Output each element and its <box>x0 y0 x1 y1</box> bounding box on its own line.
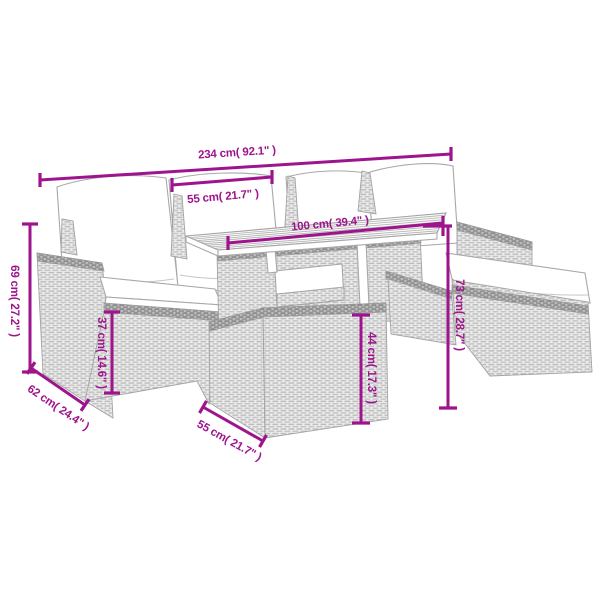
dim-total-height: 69 cm( 27.2" ) <box>8 224 38 372</box>
dim-seat-height-label: 37 cm( 14.6" ) <box>95 317 107 389</box>
dim-total-height-label: 69 cm( 27.2" ) <box>8 265 20 337</box>
dim-back-height-label: 73 cm( 28.7" ) <box>453 279 465 351</box>
dim-total-width-label: 234 cm( 92.1" ) <box>198 145 277 162</box>
right-sofa-seat <box>386 271 456 345</box>
dim-table-height-label: 44 cm( 17.3" ) <box>365 332 377 404</box>
dimension-diagram: 234 cm( 92.1" ) 55 cm( 21.7" ) 100 cm( 3… <box>0 0 600 600</box>
furniture-dimension-drawing: 234 cm( 92.1" ) 55 cm( 21.7" ) 100 cm( 3… <box>0 0 600 600</box>
ottoman <box>446 253 592 376</box>
